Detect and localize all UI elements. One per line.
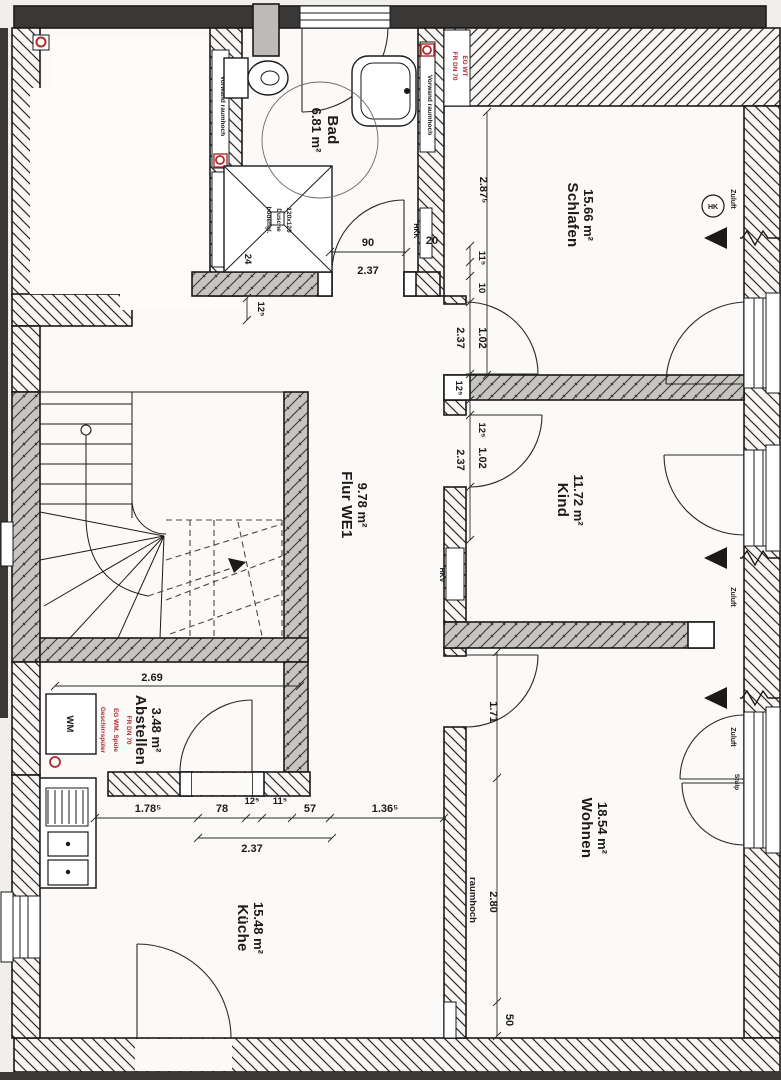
washing-machine: WM	[46, 694, 96, 754]
window-stairwell	[1, 522, 13, 566]
dim-125-wall: 12⁵	[453, 380, 464, 395]
dim-78: 78	[216, 803, 228, 815]
room-name: Abstellen	[132, 695, 149, 765]
vorwand-right: Vorwand raumhoch	[420, 42, 435, 152]
dim-total-237: 2.37	[454, 327, 466, 348]
pillar-top	[253, 4, 279, 56]
window-sill	[766, 445, 780, 551]
zuluft-label: Zuluft	[729, 587, 736, 607]
wall-bottom-edge-band	[0, 1072, 781, 1080]
abstellen-note-line3: Geschirrspüler	[99, 707, 106, 754]
shower-label-3: 120x120	[285, 207, 292, 233]
svg-text:2.69: 2.69	[141, 672, 162, 684]
shower-label-1: bodengl.	[265, 206, 272, 233]
wall-left-mid	[12, 326, 40, 392]
wall-left-abstellen	[12, 662, 40, 775]
room-area: 6.81 m²	[309, 108, 324, 153]
room-name: Wohnen	[578, 798, 595, 859]
drain-dot	[66, 842, 70, 846]
toilet	[224, 58, 288, 98]
wall-cap	[180, 772, 192, 796]
dim-115: 11⁵	[273, 796, 288, 807]
plumbing-marker-topleft	[33, 35, 49, 50]
shaft-note-line2: EG WT	[461, 55, 468, 76]
wall-schlafen-top	[444, 28, 780, 106]
window-sill	[1, 892, 13, 962]
wall-cap	[688, 622, 714, 648]
door-opening	[135, 1039, 232, 1071]
wall-right	[744, 106, 780, 1038]
erased-area	[30, 38, 240, 310]
dim-90: 90	[362, 237, 374, 249]
room-area: 3.48 m²	[149, 708, 164, 753]
dim-24: 24	[242, 254, 253, 265]
dim-237: 2.37	[357, 265, 378, 277]
window-sill	[766, 707, 780, 853]
shaft-bad: FR DN 70 EG WT	[444, 30, 470, 106]
hk-label: HK	[708, 204, 718, 211]
zuluft-label: Zuluft	[729, 727, 736, 747]
room-area: 9.78 m²	[355, 483, 370, 528]
wall-spine-kind-top	[444, 400, 466, 415]
svg-text:2.87⁵: 2.87⁵	[477, 177, 489, 204]
hkv-label: HKV	[438, 568, 445, 583]
dim-102: 1.02	[476, 327, 488, 348]
faucet	[404, 88, 410, 94]
room-name: Flur WE1	[338, 471, 355, 538]
wall-schlafen-kind	[444, 375, 744, 400]
dim-57: 57	[304, 803, 316, 815]
wall-cap	[252, 772, 264, 796]
wall-stair-bottom	[40, 638, 308, 662]
raumhoch-label: raumhoch	[467, 877, 478, 923]
floor-plan-page: FR DN 70 EG WT Stulp	[0, 0, 781, 1080]
room-area: 15.66 m²	[581, 189, 596, 242]
wall-left-horizontal	[12, 294, 132, 326]
room-area: 11.72 m²	[571, 474, 586, 526]
abstellen-note-line1: FR DN 70	[125, 716, 132, 745]
hkk-label: HKK	[412, 223, 419, 238]
room-name: Bad	[324, 115, 341, 144]
wm-label: WM	[64, 716, 75, 733]
shower: bodengl. Dusche 120x120	[224, 166, 332, 272]
abstellen-note-line2: EG WM. Spüle	[112, 708, 119, 752]
dim-125: 12⁵	[476, 422, 487, 437]
wall-left-edge-band	[0, 28, 8, 718]
dim-280: 2.80	[487, 891, 499, 912]
wall-bad-bottom	[192, 272, 332, 296]
wall-stair-right	[284, 392, 308, 662]
room-name: Schlafen	[564, 183, 581, 248]
shaft-note-line1: FR DN 70	[451, 52, 458, 81]
wall-pillar-notch	[444, 1002, 456, 1038]
dim-102: 1.02	[476, 447, 488, 468]
dim-20: 20	[426, 235, 438, 247]
room-label-wohnen: Wohnen 18.54 m²	[578, 798, 610, 859]
window-sill	[766, 293, 780, 393]
dim-total-237: 2.37	[241, 843, 262, 855]
room-name: Küche	[234, 904, 251, 951]
dim-10: 10	[476, 283, 487, 294]
floor-plan-drawing: FR DN 70 EG WT Stulp	[0, 0, 781, 1080]
wall-left-stair	[12, 392, 40, 662]
kitchen-sink-unit	[40, 778, 96, 888]
wall-kind-wohnen	[444, 622, 714, 648]
wall-spine-stub2	[444, 648, 466, 656]
dim-total-237: 2.37	[454, 449, 466, 470]
room-area: 18.54 m²	[595, 802, 610, 855]
dim-1785: 1.78⁵	[135, 803, 162, 815]
svg-text:12⁵: 12⁵	[255, 301, 266, 316]
dim-171: 1.71	[487, 701, 499, 722]
stulp-label: Stulp	[733, 774, 740, 790]
wall-abstellen-right	[284, 662, 308, 772]
wall-cap	[404, 272, 416, 296]
dim-1365: 1.36⁵	[372, 803, 399, 815]
vorwand-right-label: Vorwand raumhoch	[426, 75, 433, 135]
dim-125: 12⁵	[244, 796, 259, 807]
room-label-schlafen: Schlafen 15.66 m²	[564, 183, 596, 248]
washbasin	[352, 56, 416, 126]
door-opening-abstellen	[192, 773, 252, 795]
wall-cap	[318, 272, 332, 296]
room-name: Kind	[554, 483, 571, 518]
dim-115: 11⁵	[476, 251, 487, 266]
shower-label-2: Dusche	[275, 208, 282, 232]
room-area: 15.48 m²	[251, 902, 266, 955]
zuluft-label: Zuluft	[729, 189, 736, 209]
wall-kueche-wohnen	[444, 727, 466, 1038]
dim-50: 50	[503, 1014, 515, 1026]
drain-dot	[66, 870, 70, 874]
wall-bottom	[14, 1038, 780, 1072]
window-kueche-left	[1, 892, 40, 962]
room-label-kueche: Küche 15.48 m²	[234, 902, 266, 955]
wall-spine-stub	[444, 296, 466, 304]
